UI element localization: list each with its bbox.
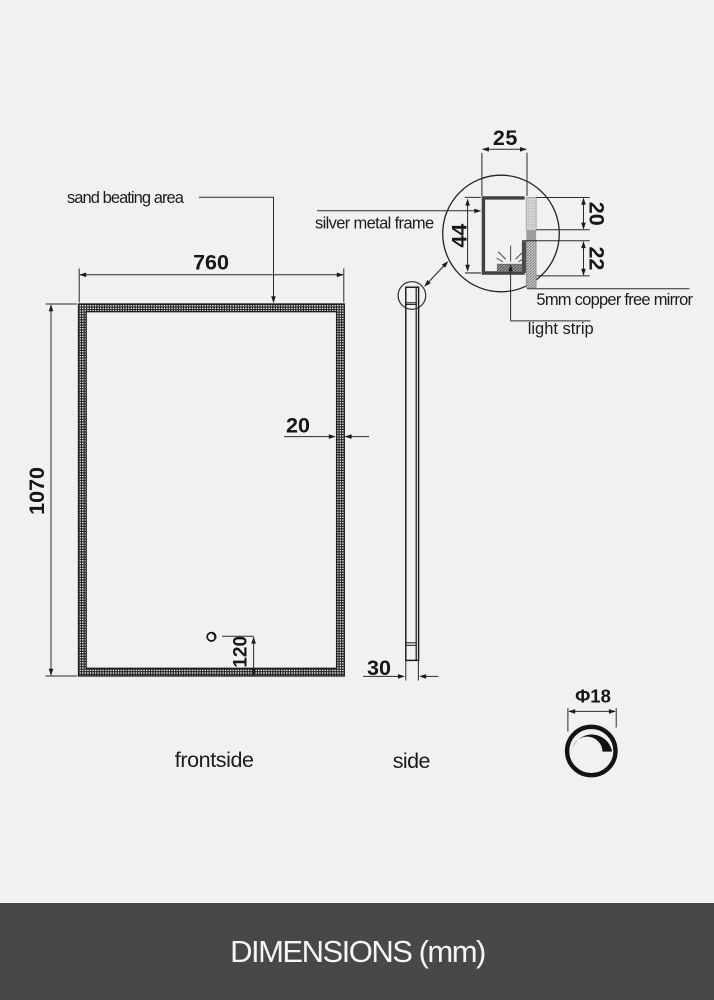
svg-text:1070: 1070 [25,467,49,515]
svg-text:20: 20 [584,202,608,226]
svg-text:44: 44 [447,224,471,248]
svg-text:120: 120 [230,636,251,668]
svg-text:20: 20 [286,413,310,437]
svg-text:25: 25 [493,126,518,150]
svg-text:30: 30 [367,656,391,680]
svg-text:760: 760 [193,251,229,275]
svg-text:Φ18: Φ18 [575,686,611,707]
svg-text:DIMENSIONS (mm): DIMENSIONS (mm) [230,934,485,969]
svg-text:silver metal frame: silver metal frame [315,215,434,233]
svg-text:light strip: light strip [528,320,594,338]
svg-text:side: side [393,749,430,773]
svg-text:22: 22 [584,246,608,270]
svg-text:frontside: frontside [175,748,254,772]
svg-text:5mm copper free mirror: 5mm copper free mirror [536,291,693,309]
svg-text:sand beating area: sand beating area [67,189,185,207]
